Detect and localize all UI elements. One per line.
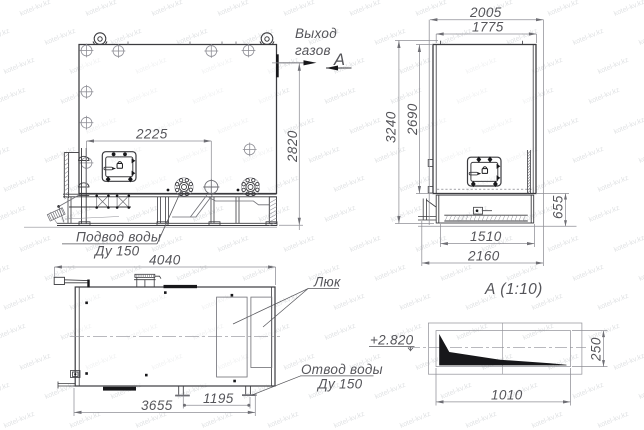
svg-text:kotel-kv.kz: kotel-kv.kz — [349, 234, 382, 253]
svg-text:kotel-kv.kz: kotel-kv.kz — [390, 86, 423, 105]
svg-text:kotel-kv.kz: kotel-kv.kz — [572, 145, 605, 164]
svg-text:kotel-kv.kz: kotel-kv.kz — [3, 56, 36, 75]
svg-text:kotel-kv.kz: kotel-kv.kz — [572, 381, 605, 400]
svg-text:kotel-kv.kz: kotel-kv.kz — [0, 145, 11, 164]
svg-text:kotel-kv.kz: kotel-kv.kz — [456, 322, 489, 341]
svg-text:kotel-kv.kz: kotel-kv.kz — [440, 263, 473, 282]
svg-text:kotel-kv.kz: kotel-kv.kz — [638, 263, 644, 282]
svg-text:kotel-kv.kz: kotel-kv.kz — [44, 27, 77, 46]
svg-text:kotel-kv.kz: kotel-kv.kz — [390, 204, 423, 223]
svg-text:kotel-kv.kz: kotel-kv.kz — [283, 234, 316, 253]
svg-text:kotel-kv.kz: kotel-kv.kz — [613, 116, 644, 135]
svg-text:2690: 2690 — [405, 103, 420, 136]
svg-text:2225: 2225 — [135, 127, 168, 142]
svg-text:kotel-kv.kz: kotel-kv.kz — [638, 145, 644, 164]
svg-text:kotel-kv.kz: kotel-kv.kz — [324, 322, 357, 341]
svg-text:kotel-kv.kz: kotel-kv.kz — [217, 234, 250, 253]
svg-text:kotel-kv.kz: kotel-kv.kz — [399, 56, 432, 75]
svg-text:А: А — [333, 51, 345, 69]
svg-text:kotel-kv.kz: kotel-kv.kz — [465, 410, 498, 429]
svg-text:kotel-kv.kz: kotel-kv.kz — [638, 381, 644, 400]
svg-text:kotel-kv.kz: kotel-kv.kz — [613, 234, 644, 253]
svg-text:4040: 4040 — [149, 253, 181, 268]
svg-text:kotel-kv.kz: kotel-kv.kz — [547, 352, 580, 371]
svg-text:655: 655 — [551, 195, 566, 219]
svg-text:1195: 1195 — [203, 391, 234, 406]
svg-text:kotel-kv.kz: kotel-kv.kz — [3, 292, 36, 311]
svg-text:kotel-kv.kz: kotel-kv.kz — [19, 116, 52, 135]
svg-text:3240: 3240 — [384, 111, 399, 143]
svg-text:1010: 1010 — [491, 387, 523, 402]
svg-text:kotel-kv.kz: kotel-kv.kz — [506, 263, 539, 282]
svg-text:kotel-kv.kz: kotel-kv.kz — [201, 410, 234, 429]
svg-text:2160: 2160 — [467, 249, 500, 264]
svg-text:kotel-kv.kz: kotel-kv.kz — [572, 263, 605, 282]
svg-text:kotel-kv.kz: kotel-kv.kz — [374, 263, 407, 282]
svg-text:kotel-kv.kz: kotel-kv.kz — [399, 174, 432, 193]
svg-text:kotel-kv.kz: kotel-kv.kz — [588, 204, 621, 223]
svg-text:kotel-kv.kz: kotel-kv.kz — [333, 410, 366, 429]
svg-text:kotel-kv.kz: kotel-kv.kz — [126, 204, 159, 223]
svg-text:kotel-kv.kz: kotel-kv.kz — [3, 174, 36, 193]
svg-text:kotel-kv.kz: kotel-kv.kz — [135, 410, 168, 429]
svg-text:kotel-kv.kz: kotel-kv.kz — [0, 381, 11, 400]
svg-text:kotel-kv.kz: kotel-kv.kz — [597, 410, 630, 429]
svg-text:kotel-kv.kz: kotel-kv.kz — [3, 410, 36, 429]
svg-text:kotel-kv.kz: kotel-kv.kz — [333, 174, 366, 193]
svg-text:Ду 150: Ду 150 — [316, 377, 363, 392]
svg-text:kotel-kv.kz: kotel-kv.kz — [547, 0, 580, 18]
svg-text:kotel-kv.kz: kotel-kv.kz — [597, 292, 630, 311]
svg-text:Люк: Люк — [313, 275, 341, 290]
svg-text:kotel-kv.kz: kotel-kv.kz — [19, 234, 52, 253]
svg-text:kotel-kv.kz: kotel-kv.kz — [0, 86, 27, 105]
svg-text:kotel-kv.kz: kotel-kv.kz — [572, 27, 605, 46]
svg-text:kotel-kv.kz: kotel-kv.kz — [324, 86, 357, 105]
svg-text:А (1:10): А (1:10) — [484, 281, 543, 298]
svg-text:kotel-kv.kz: kotel-kv.kz — [349, 0, 382, 18]
svg-text:kotel-kv.kz: kotel-kv.kz — [522, 322, 555, 341]
svg-text:kotel-kv.kz: kotel-kv.kz — [0, 322, 27, 341]
svg-text:kotel-kv.kz: kotel-kv.kz — [192, 204, 225, 223]
svg-text:kotel-kv.kz: kotel-kv.kz — [333, 292, 366, 311]
svg-text:2005: 2005 — [469, 5, 502, 20]
svg-text:kotel-kv.kz: kotel-kv.kz — [0, 204, 27, 223]
svg-text:газов: газов — [295, 43, 331, 58]
svg-text:1775: 1775 — [472, 20, 504, 35]
svg-text:Отвод воды: Отвод воды — [301, 362, 383, 377]
svg-text:kotel-kv.kz: kotel-kv.kz — [217, 0, 250, 18]
svg-text:kotel-kv.kz: kotel-kv.kz — [349, 116, 382, 135]
svg-text:kotel-kv.kz: kotel-kv.kz — [547, 116, 580, 135]
svg-text:kotel-kv.kz: kotel-kv.kz — [613, 0, 644, 18]
svg-text:2820: 2820 — [285, 130, 300, 163]
svg-text:kotel-kv.kz: kotel-kv.kz — [597, 56, 630, 75]
svg-text:kotel-kv.kz: kotel-kv.kz — [613, 352, 644, 371]
svg-text:kotel-kv.kz: kotel-kv.kz — [597, 174, 630, 193]
svg-text:1510: 1510 — [470, 229, 502, 244]
svg-text:kotel-kv.kz: kotel-kv.kz — [440, 381, 473, 400]
svg-text:Ду 150: Ду 150 — [93, 244, 140, 259]
svg-text:kotel-kv.kz: kotel-kv.kz — [151, 0, 184, 18]
svg-text:kotel-kv.kz: kotel-kv.kz — [374, 145, 407, 164]
svg-text:kotel-kv.kz: kotel-kv.kz — [176, 263, 209, 282]
svg-text:kotel-kv.kz: kotel-kv.kz — [44, 145, 77, 164]
svg-text:kotel-kv.kz: kotel-kv.kz — [0, 263, 11, 282]
svg-text:Подвод воды: Подвод воды — [76, 230, 161, 245]
svg-text:250: 250 — [589, 337, 604, 362]
svg-text:kotel-kv.kz: kotel-kv.kz — [547, 234, 580, 253]
svg-text:kotel-kv.kz: kotel-kv.kz — [374, 27, 407, 46]
svg-text:+2.820: +2.820 — [370, 333, 414, 348]
svg-text:kotel-kv.kz: kotel-kv.kz — [19, 352, 52, 371]
svg-text:kotel-kv.kz: kotel-kv.kz — [267, 410, 300, 429]
svg-text:kotel-kv.kz: kotel-kv.kz — [308, 145, 341, 164]
svg-text:kotel-kv.kz: kotel-kv.kz — [415, 0, 448, 18]
svg-text:kotel-kv.kz: kotel-kv.kz — [283, 0, 316, 18]
svg-text:kotel-kv.kz: kotel-kv.kz — [399, 410, 432, 429]
svg-text:3655: 3655 — [141, 398, 173, 413]
svg-text:kotel-kv.kz: kotel-kv.kz — [85, 0, 118, 18]
svg-text:kotel-kv.kz: kotel-kv.kz — [588, 86, 621, 105]
svg-text:kotel-kv.kz: kotel-kv.kz — [0, 27, 11, 46]
svg-text:kotel-kv.kz: kotel-kv.kz — [374, 381, 407, 400]
svg-text:kotel-kv.kz: kotel-kv.kz — [324, 204, 357, 223]
svg-text:kotel-kv.kz: kotel-kv.kz — [638, 27, 644, 46]
svg-text:Выход: Выход — [295, 26, 337, 41]
svg-text:kotel-kv.kz: kotel-kv.kz — [399, 292, 432, 311]
svg-text:kotel-kv.kz: kotel-kv.kz — [531, 410, 564, 429]
svg-text:kotel-kv.kz: kotel-kv.kz — [19, 0, 52, 18]
svg-text:kotel-kv.kz: kotel-kv.kz — [44, 381, 77, 400]
